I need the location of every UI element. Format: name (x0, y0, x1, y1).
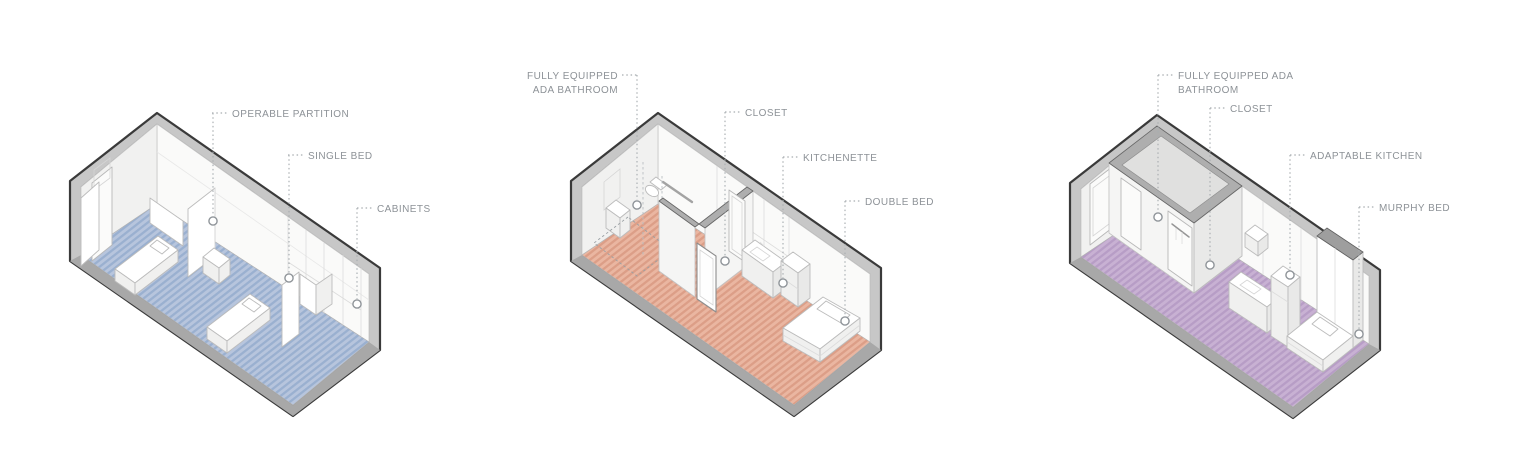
leader-marker (1286, 271, 1294, 279)
leader-marker (633, 201, 641, 209)
label-ada-bathroom-line2: BATHROOM (1178, 85, 1239, 96)
label-adaptable-kitchen: ADAPTABLE KITCHEN (1310, 151, 1423, 162)
label-closet: CLOSET (745, 108, 788, 119)
label-double-bed: DOUBLE BED (865, 197, 934, 208)
leader-marker (353, 300, 361, 308)
leader-marker (841, 317, 849, 325)
label-ada-bathroom-line1: FULLY EQUIPPED ADA (1178, 71, 1294, 82)
label-operable-partition: OPERABLE PARTITION (232, 109, 349, 120)
leader-marker (1355, 330, 1363, 338)
leader-marker (1154, 213, 1162, 221)
leader-marker (209, 217, 217, 225)
label-ada-bathroom-line1: FULLY EQUIPPED (527, 71, 618, 82)
diagram-page: OPERABLE PARTITION SINGLE BED CABINETS (0, 0, 1536, 476)
leader-marker (779, 279, 787, 287)
leader-marker (285, 274, 293, 282)
label-murphy-bed: MURPHY BED (1379, 203, 1450, 214)
leader-marker (1206, 261, 1214, 269)
label-cabinets: CABINETS (377, 204, 431, 215)
label-ada-bathroom-line2: ADA BATHROOM (533, 85, 618, 96)
label-closet: CLOSET (1230, 104, 1273, 115)
leader-marker (721, 257, 729, 265)
label-single-bed: SINGLE BED (308, 151, 373, 162)
label-kitchenette: KITCHENETTE (803, 153, 877, 164)
diagram-canvas: OPERABLE PARTITION SINGLE BED CABINETS (0, 0, 1536, 476)
